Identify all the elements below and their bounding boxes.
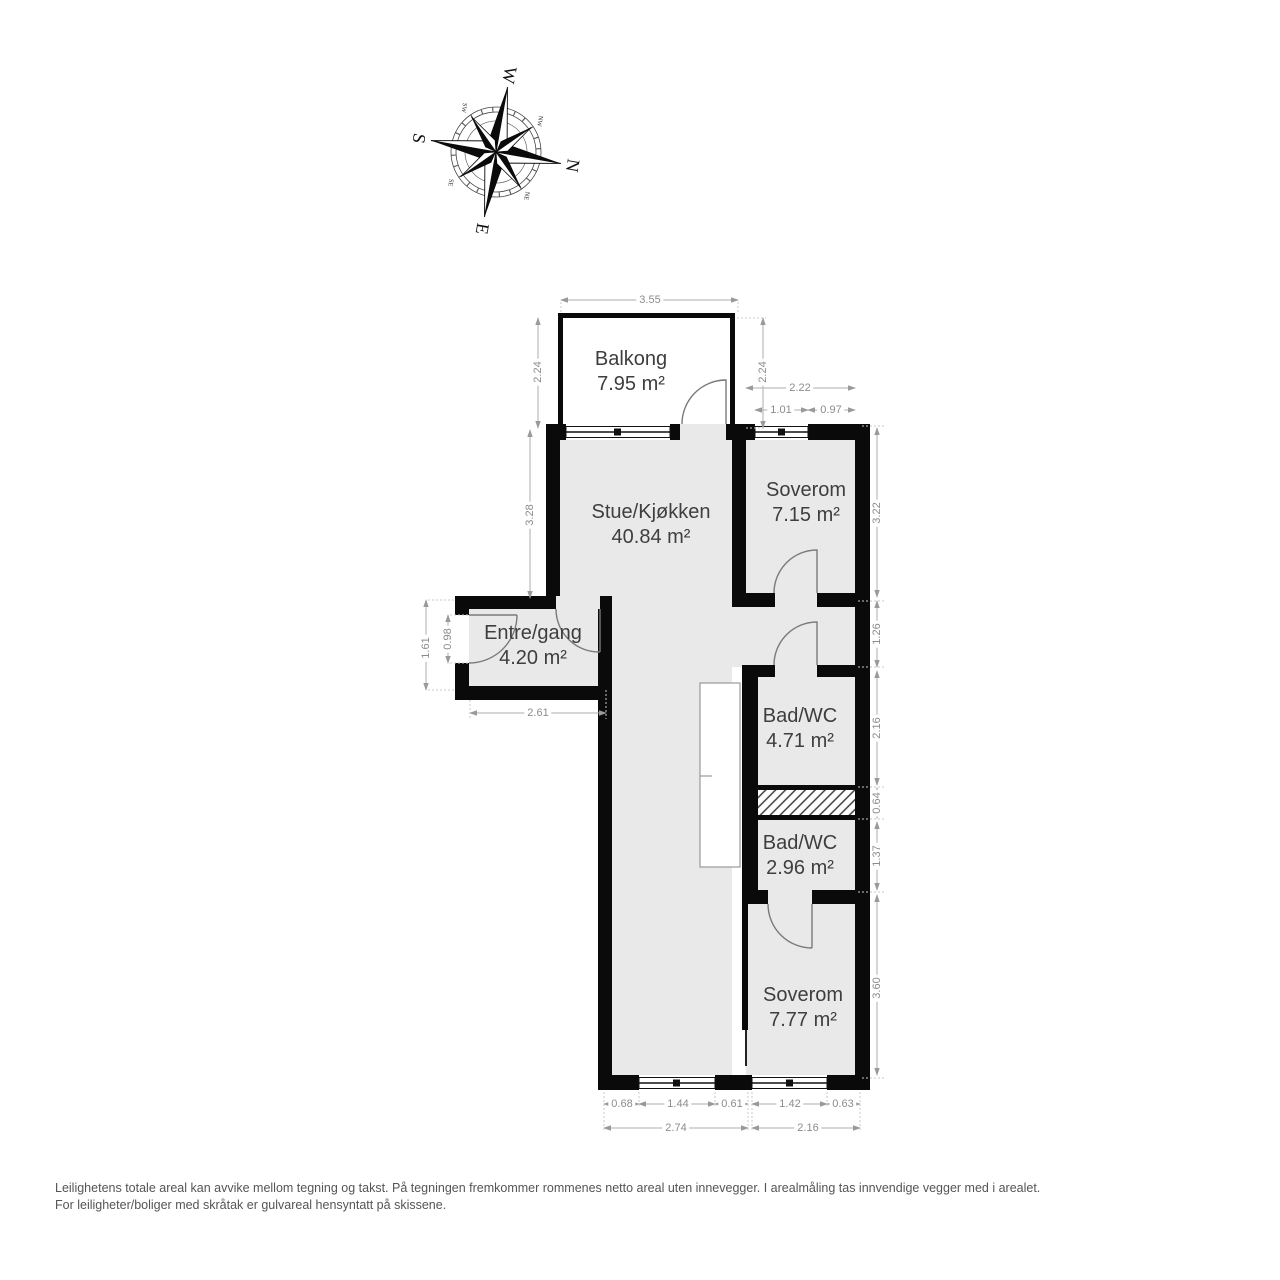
dim-bedroom2-depth: 3.60: [871, 974, 883, 1001]
room-label-bedroom2: Soverom 7.77 m²: [763, 983, 843, 1033]
room-area: 7.77 m²: [763, 1008, 843, 1033]
room-area: 4.20 m²: [484, 646, 582, 671]
room-label-balcony: Balkong 7.95 m²: [595, 347, 667, 397]
dim-bedroom1-wall: 0.97: [817, 404, 844, 416]
dim-bottom-seg4: 1.42: [776, 1098, 803, 1110]
room-name: Balkong: [595, 347, 667, 372]
balcony-door-arc: [682, 380, 726, 424]
dim-shaft-depth: 0.64: [871, 789, 883, 816]
dim-hall-depth: 1.26: [871, 620, 883, 647]
room-name: Stue/Kjøkken: [592, 500, 711, 525]
compass-sw-label: SW: [459, 102, 468, 114]
dim-balcony-width: 3.55: [636, 294, 663, 306]
room-area: 7.95 m²: [595, 372, 667, 397]
compass-s-label: S: [408, 132, 429, 145]
compass-e-label: E: [472, 222, 494, 236]
room-area: 40.84 m²: [592, 525, 711, 550]
room-label-bath2: Bad/WC 2.96 m²: [763, 831, 837, 881]
compass-rose: N E S W NE SE SW NW: [395, 52, 598, 250]
closet: [700, 683, 740, 867]
dim-entre-door: 0.98: [442, 625, 454, 652]
room-label-bedroom1: Soverom 7.15 m²: [766, 478, 846, 528]
room-name: Soverom: [763, 983, 843, 1008]
room-name: Bad/WC: [763, 831, 837, 856]
dim-bedroom1-depth: 3.22: [871, 499, 883, 526]
room-label-bath1: Bad/WC 4.71 m²: [763, 704, 837, 754]
dim-entre-outer-left: 1.61: [420, 634, 432, 661]
dim-bottom-seg2: 1.44: [664, 1098, 691, 1110]
room-area: 7.15 m²: [766, 503, 846, 528]
compass-nw-label: NW: [535, 115, 544, 128]
disclaimer-line2: For leiligheter/boliger med skråtak er g…: [55, 1197, 1235, 1214]
room-area: 2.96 m²: [763, 856, 837, 881]
compass-se-label: SE: [446, 178, 454, 187]
floor-plan-svg: N E S W NE SE SW NW: [0, 0, 1280, 1280]
room-name: Bad/WC: [763, 704, 837, 729]
room-label-living: Stue/Kjøkken 40.84 m²: [592, 500, 711, 550]
disclaimer: Leilighetens totale areal kan avvike mel…: [55, 1180, 1235, 1214]
room-name: Entre/gang: [484, 621, 582, 646]
dim-bottom-total-right: 2.16: [794, 1122, 821, 1134]
dim-balcony-depth-left: 2.24: [532, 358, 544, 385]
compass-w-label: W: [498, 65, 521, 85]
compass-ne-label: NE: [522, 191, 530, 201]
room-label-entre: Entre/gang 4.20 m²: [484, 621, 582, 671]
floorplan-page: N E S W NE SE SW NW Balkong 7.95 m² Stue…: [0, 0, 1280, 1280]
dim-bottom-seg1: 0.68: [608, 1098, 635, 1110]
compass-points: [420, 76, 573, 229]
dim-bottom-seg5: 0.63: [829, 1098, 856, 1110]
compass-n-label: N: [562, 157, 584, 173]
dim-living-left-height: 3.28: [524, 501, 536, 528]
dim-bath1-depth: 2.16: [871, 714, 883, 741]
dim-entre-width: 2.61: [524, 707, 551, 719]
dim-bedroom1-window: 1.01: [767, 404, 794, 416]
dim-bath2-depth: 1.37: [871, 842, 883, 869]
disclaimer-line1: Leilighetens totale areal kan avvike mel…: [55, 1180, 1235, 1197]
dim-bedroom1-width: 2.22: [786, 382, 813, 394]
dim-bottom-seg3: 0.61: [718, 1098, 745, 1110]
dim-bottom-total-left: 2.74: [662, 1122, 689, 1134]
shaft-hatch: [758, 790, 855, 815]
dim-balcony-depth-right: 2.24: [757, 358, 769, 385]
room-name: Soverom: [766, 478, 846, 503]
room-area: 4.71 m²: [763, 729, 837, 754]
